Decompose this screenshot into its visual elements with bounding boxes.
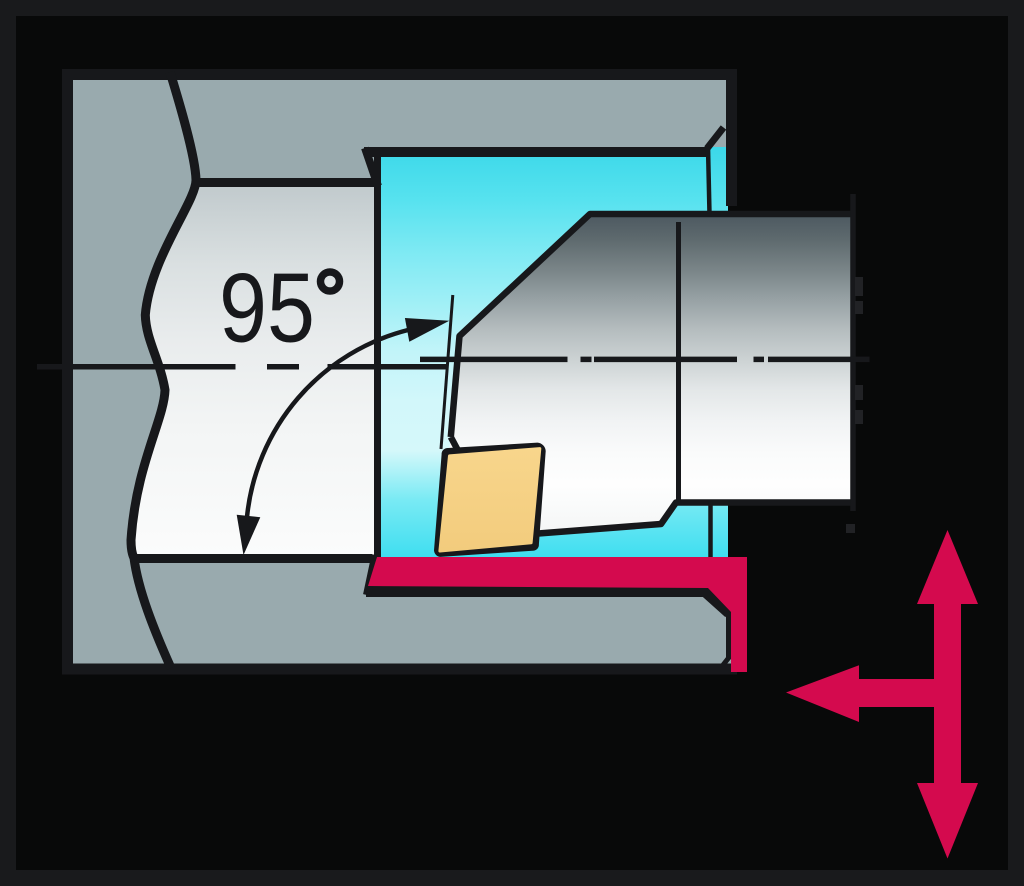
svg-text:95: 95 — [219, 252, 315, 362]
